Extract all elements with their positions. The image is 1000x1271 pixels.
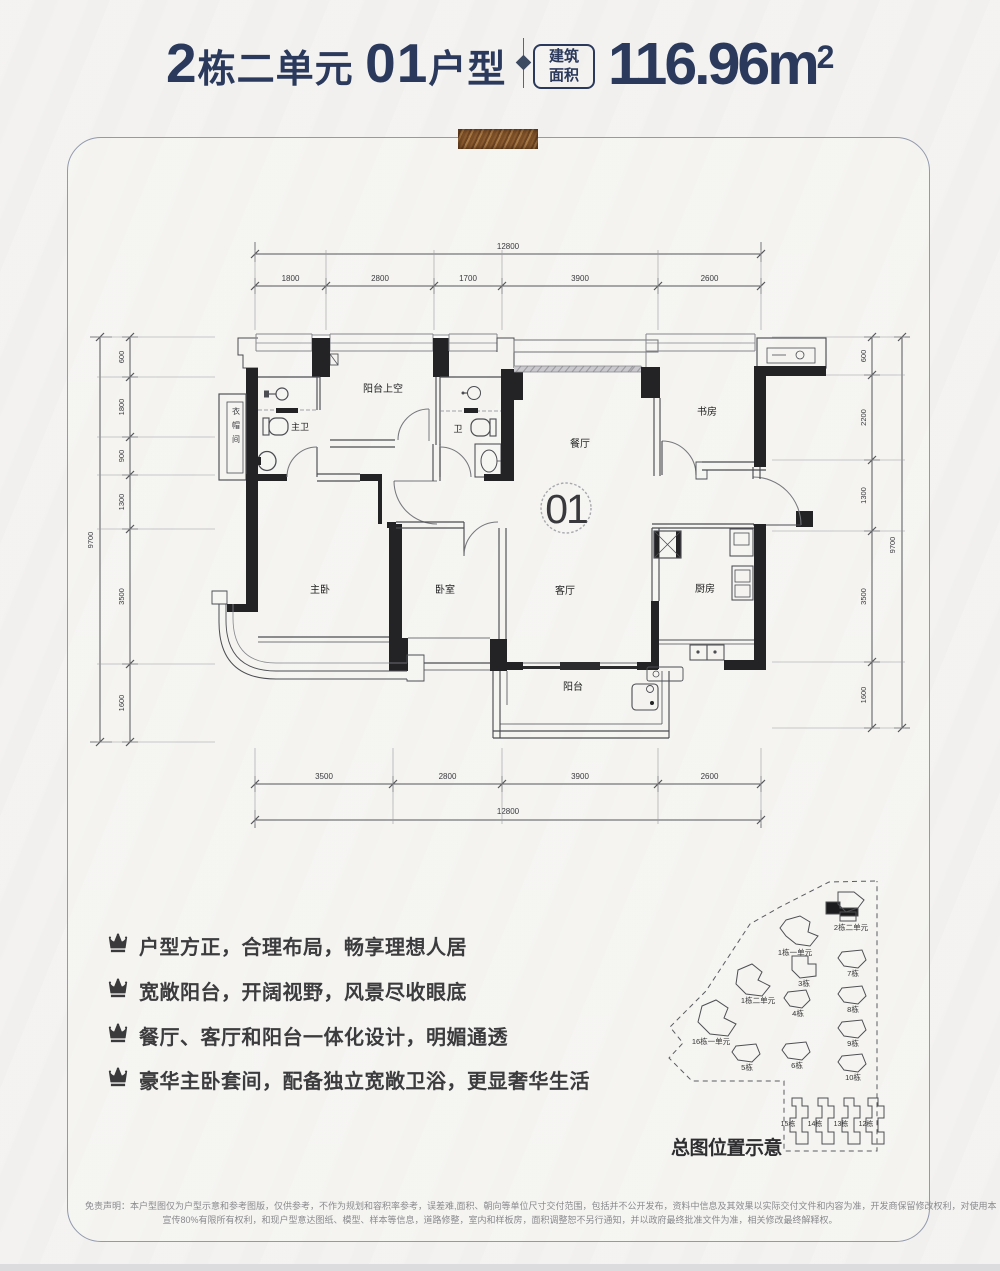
- svg-text:1栋二单元: 1栋二单元: [741, 995, 776, 1005]
- svg-text:14栋: 14栋: [808, 1119, 823, 1128]
- svg-text:主卫: 主卫: [291, 421, 309, 432]
- svg-text:900: 900: [117, 450, 126, 463]
- svg-text:1300: 1300: [117, 494, 126, 511]
- svg-text:书房: 书房: [697, 405, 717, 418]
- svg-text:7栋: 7栋: [847, 968, 859, 978]
- svg-text:卧室: 卧室: [435, 583, 455, 596]
- svg-text:衣帽间: 衣帽间: [232, 406, 240, 444]
- svg-text:2200: 2200: [859, 409, 868, 426]
- svg-text:阳台上空: 阳台上空: [363, 382, 403, 395]
- svg-text:1300: 1300: [859, 487, 868, 504]
- svg-text:1600: 1600: [859, 687, 868, 704]
- svg-text:4栋: 4栋: [792, 1008, 804, 1018]
- svg-text:3500: 3500: [315, 772, 333, 781]
- svg-text:15栋: 15栋: [781, 1119, 796, 1128]
- svg-text:9700: 9700: [888, 537, 897, 554]
- svg-text:3900: 3900: [571, 274, 589, 283]
- svg-text:1600: 1600: [117, 695, 126, 712]
- svg-text:餐厅: 餐厅: [570, 437, 590, 450]
- svg-text:1800: 1800: [117, 399, 126, 416]
- svg-text:12800: 12800: [497, 807, 520, 816]
- svg-text:2800: 2800: [439, 772, 457, 781]
- svg-text:01: 01: [545, 486, 587, 532]
- svg-text:8栋: 8栋: [847, 1004, 859, 1014]
- svg-text:3900: 3900: [571, 772, 589, 781]
- svg-text:3栋: 3栋: [798, 978, 810, 988]
- svg-text:10栋: 10栋: [845, 1072, 861, 1082]
- svg-text:6栋: 6栋: [791, 1060, 803, 1070]
- svg-text:9700: 9700: [86, 532, 95, 549]
- svg-text:2800: 2800: [371, 274, 389, 283]
- svg-text:9栋: 9栋: [847, 1038, 859, 1048]
- svg-text:主卧: 主卧: [310, 583, 330, 596]
- svg-text:3500: 3500: [859, 588, 868, 605]
- svg-text:2600: 2600: [701, 274, 719, 283]
- svg-text:13栋: 13栋: [834, 1119, 849, 1128]
- svg-text:5栋: 5栋: [741, 1062, 753, 1072]
- svg-text:2600: 2600: [701, 772, 719, 781]
- svg-text:2栋二单元: 2栋二单元: [834, 922, 869, 932]
- svg-text:厨房: 厨房: [695, 582, 715, 595]
- svg-text:卫: 卫: [453, 424, 462, 434]
- svg-text:1800: 1800: [282, 274, 300, 283]
- svg-text:阳台: 阳台: [563, 680, 583, 693]
- svg-text:3500: 3500: [117, 588, 126, 605]
- svg-text:1700: 1700: [459, 274, 477, 283]
- svg-text:16栋一单元: 16栋一单元: [692, 1036, 731, 1046]
- svg-text:12栋: 12栋: [859, 1119, 874, 1128]
- svg-text:12800: 12800: [497, 242, 520, 251]
- svg-text:客厅: 客厅: [555, 584, 575, 597]
- svg-text:600: 600: [859, 350, 868, 363]
- svg-text:600: 600: [117, 351, 126, 364]
